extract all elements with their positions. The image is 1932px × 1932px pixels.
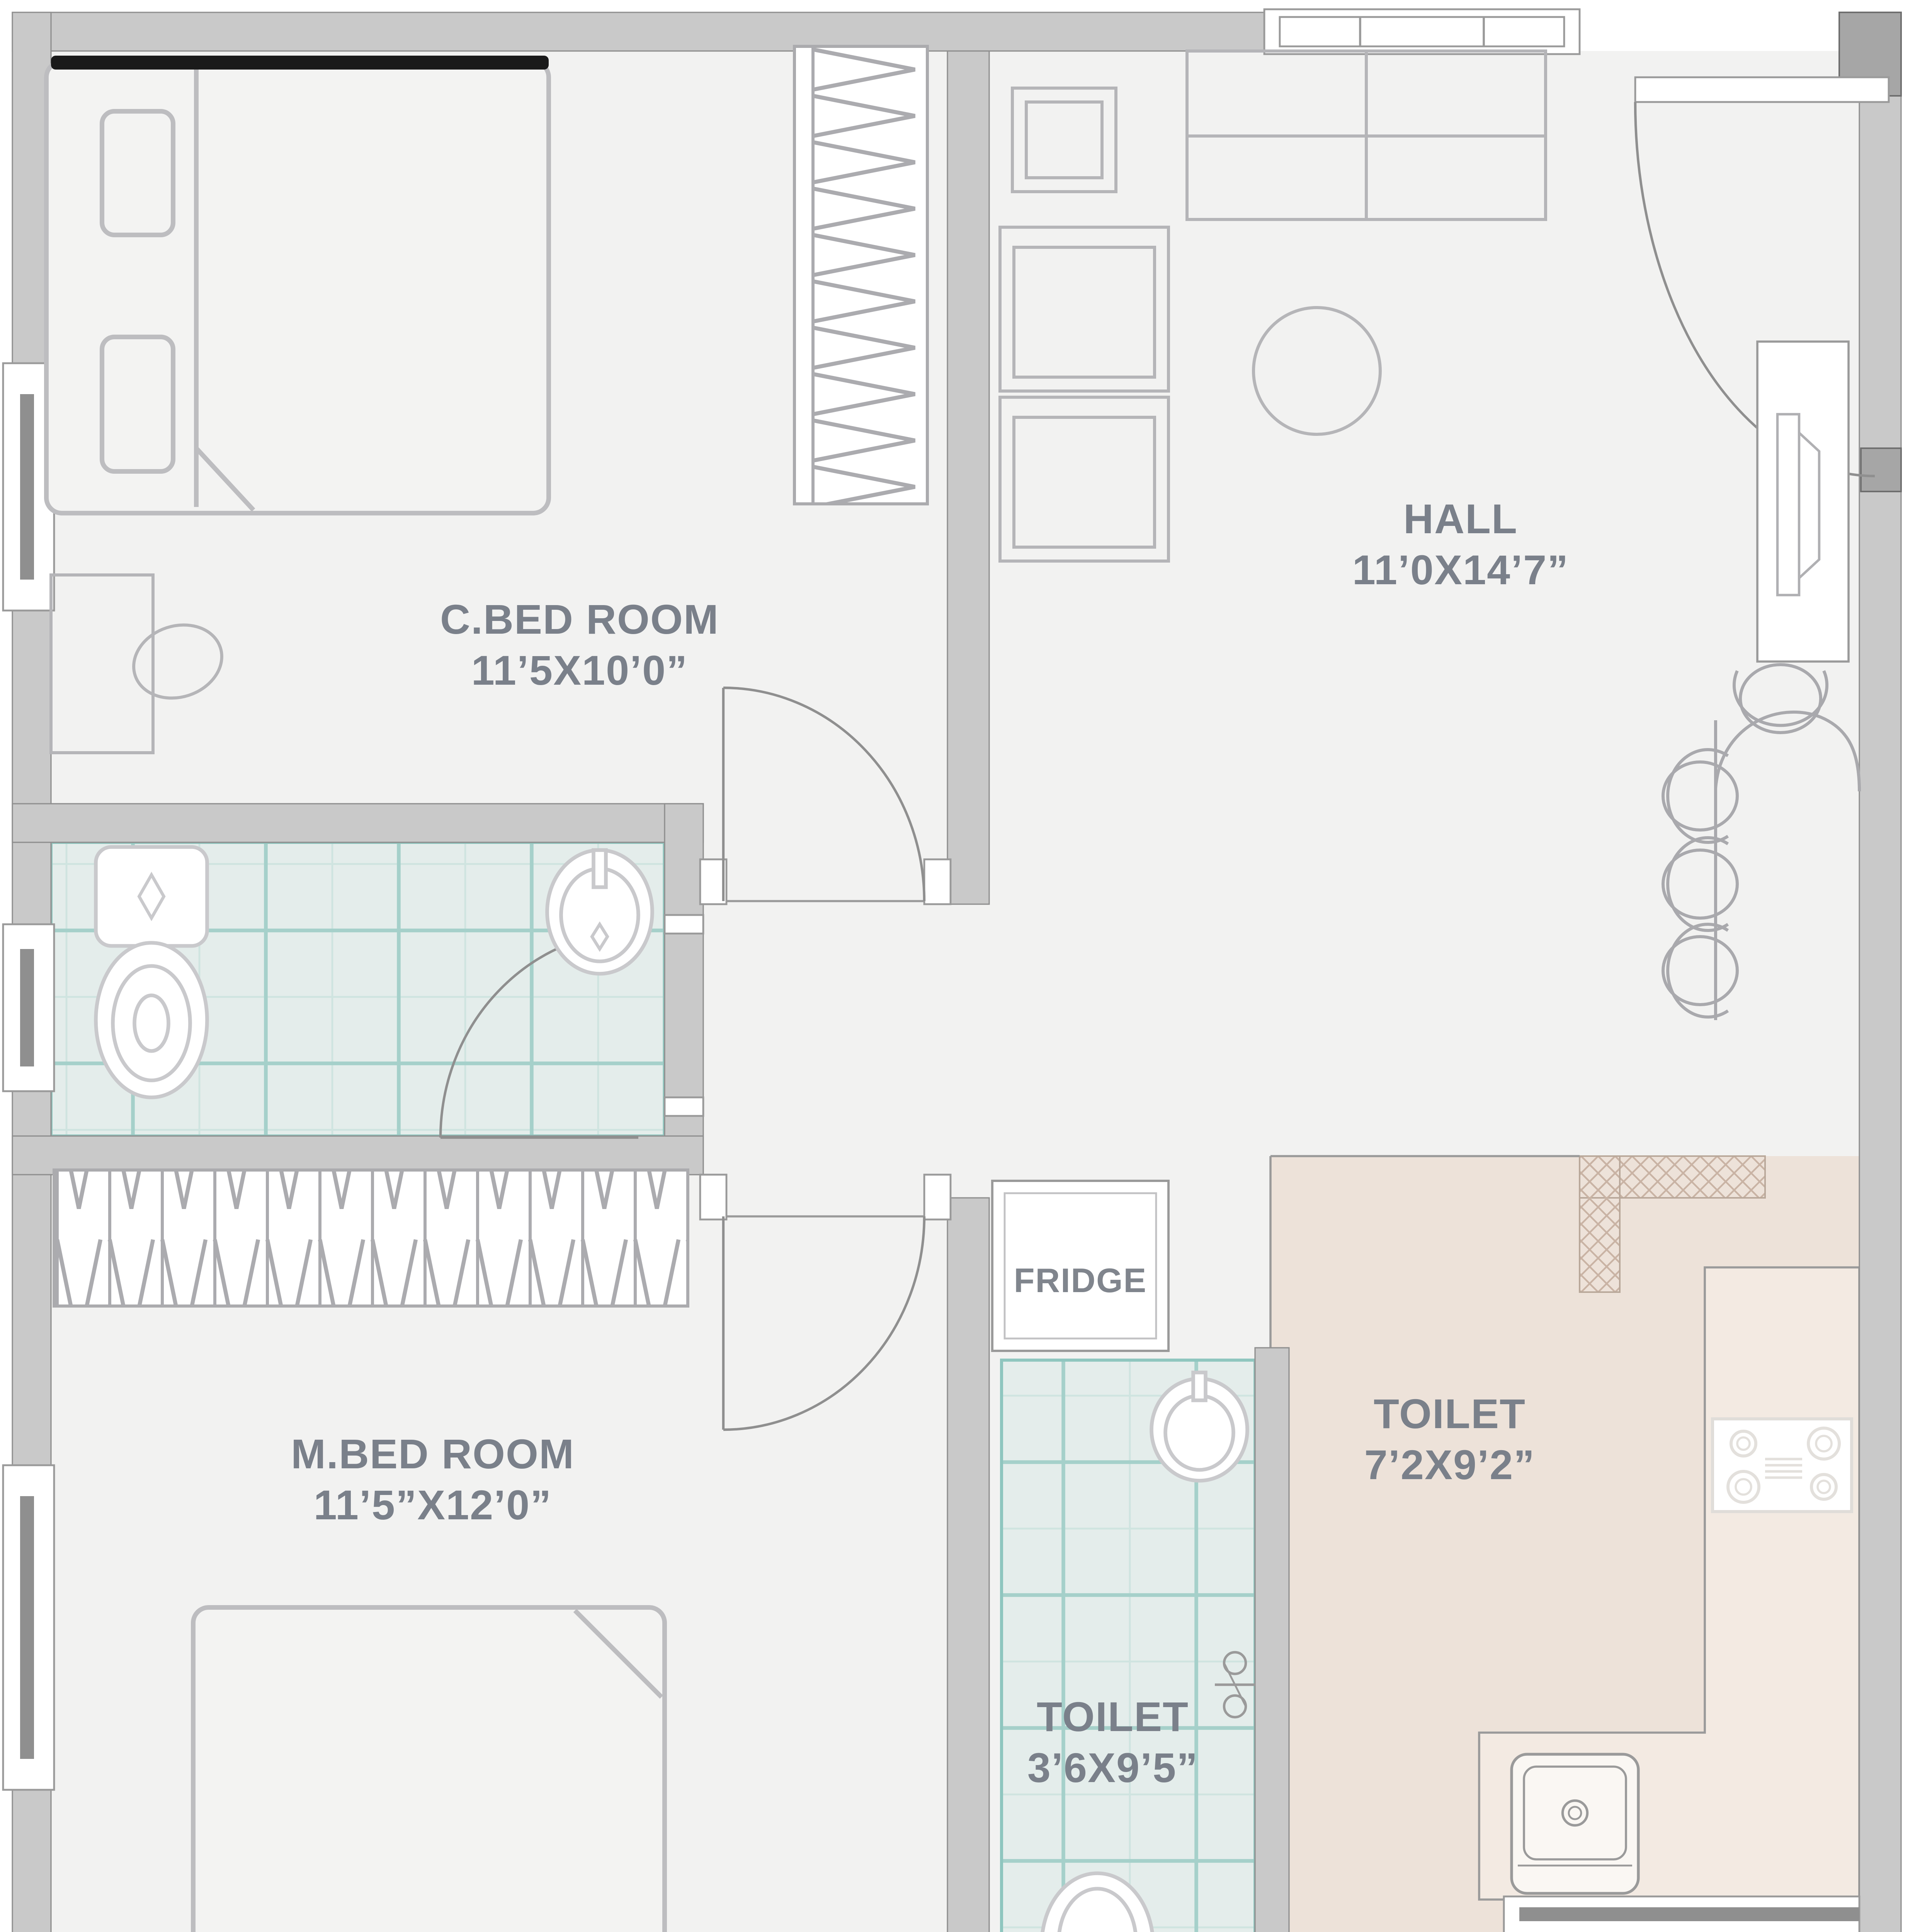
- wall-mbed-east: [947, 1198, 989, 1932]
- mbed-wardrobe: [54, 1170, 688, 1306]
- door-jamb: [665, 1097, 703, 1116]
- cbed-bed: [46, 62, 549, 513]
- wall-cbed-hall-partition: [947, 51, 989, 904]
- cbed-room-dims: 11’5X10’0”: [471, 647, 688, 694]
- hall-room-dims: 11’0X14’7”: [1352, 546, 1569, 593]
- cbed-wardrobe: [794, 46, 927, 504]
- toilet-big-dims: 7’2X9’2”: [1364, 1441, 1535, 1488]
- floor-plan-drawing: FRIDGE: [0, 0, 1932, 1932]
- toilet-top-basin: [547, 850, 652, 974]
- wall-toilet-small-right: [1255, 1348, 1289, 1932]
- wall-right: [1859, 51, 1901, 1932]
- fridge-nook: FRIDGE: [992, 1181, 1168, 1351]
- door-jamb: [665, 915, 703, 934]
- wall-toilet-top: [12, 804, 703, 842]
- wall-toilet-right: [665, 804, 703, 1175]
- window-left-mbed: [3, 1465, 54, 1790]
- toilet-small-dims: 3’6X9’5”: [1027, 1744, 1198, 1791]
- kitchen-platform-hatch-side: [1580, 1156, 1620, 1292]
- toilet-big-name: TOILET: [1374, 1390, 1526, 1437]
- fridge-label: FRIDGE: [1014, 1261, 1147, 1299]
- window-top-hall: [1264, 9, 1580, 54]
- cbed-headboard-line: [51, 56, 549, 70]
- hall-tv-unit: [1757, 342, 1849, 662]
- mbed-room-dims: 11’5”X12’0”: [314, 1481, 552, 1528]
- wall-block-door-stop: [1861, 448, 1901, 492]
- mbed-room-name: M.BED ROOM: [291, 1430, 575, 1477]
- toilet-top-wc: [96, 847, 207, 1097]
- hall-room-name: HALL: [1403, 495, 1518, 542]
- kitchen-sink: [1512, 1754, 1638, 1893]
- toilet-small-name: TOILET: [1037, 1693, 1189, 1740]
- door-frame: [924, 1175, 951, 1219]
- kitchen-hob: [1713, 1419, 1852, 1512]
- door-frame: [924, 859, 951, 904]
- window-utility-wall: [1504, 1896, 1859, 1932]
- floor-plan-page: FRIDGE: [0, 0, 1932, 1932]
- window-left-toilet: [3, 924, 54, 1091]
- mbed-bed: [193, 1607, 665, 1932]
- cbed-room-name: C.BED ROOM: [440, 596, 719, 643]
- door-frame: [700, 1175, 726, 1219]
